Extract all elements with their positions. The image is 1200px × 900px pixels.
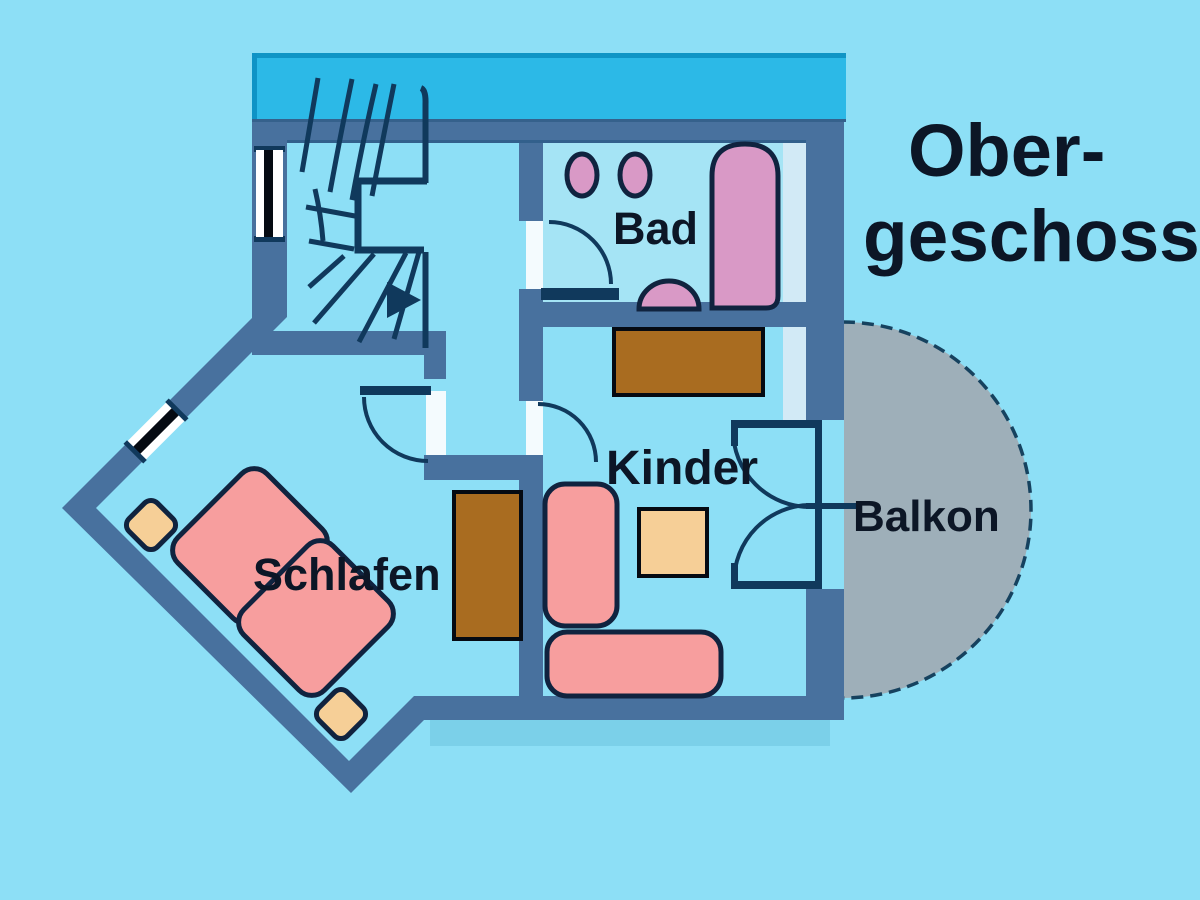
svg-text:Balkon: Balkon: [853, 492, 1000, 541]
svg-text:Ober-: Ober-: [908, 109, 1105, 192]
svg-text:Schlafen: Schlafen: [253, 549, 441, 600]
svg-text:geschoss: geschoss: [863, 196, 1200, 277]
svg-text:Bad: Bad: [613, 203, 698, 254]
svg-text:Kinder: Kinder: [606, 442, 758, 495]
